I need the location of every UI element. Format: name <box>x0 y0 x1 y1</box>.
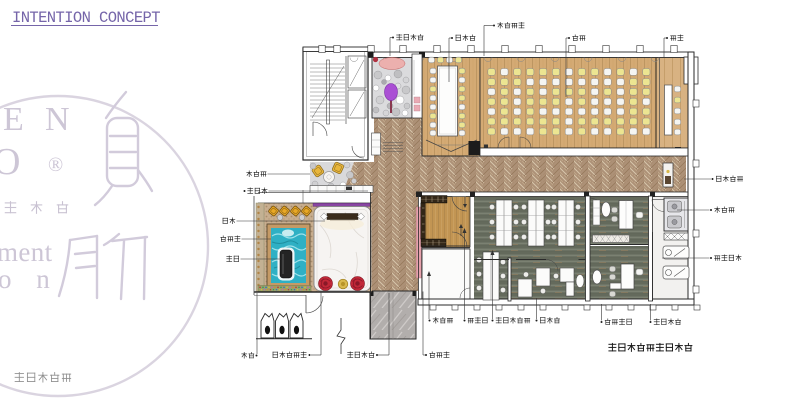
svg-text:E: E <box>3 101 24 138</box>
svg-text:O: O <box>0 141 20 183</box>
svg-text:®: ® <box>48 154 63 176</box>
svg-text:INTENTION CONCEPT: INTENTION CONCEPT <box>12 9 160 27</box>
svg-text:ment: ment <box>0 237 53 267</box>
svg-text:N: N <box>45 101 70 138</box>
svg-text:o n: o n <box>0 264 59 294</box>
